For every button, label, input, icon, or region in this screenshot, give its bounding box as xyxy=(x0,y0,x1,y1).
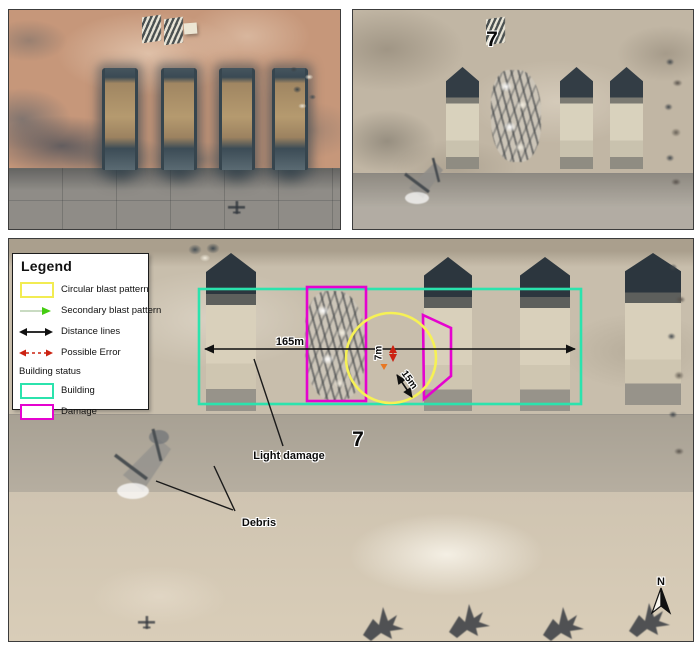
north-arrow-icon xyxy=(652,588,670,613)
distance-label-7m: 7m xyxy=(374,346,385,360)
circular-blast-swatch xyxy=(20,282,54,298)
debris-leader-line xyxy=(156,481,233,510)
legend-item-label: Damage xyxy=(61,406,97,417)
destroyed-hangar-wreckage xyxy=(491,70,541,162)
debris-column xyxy=(658,50,688,200)
legend-item-label: Distance lines xyxy=(61,326,120,337)
legend-row-possible-error: Possible Error xyxy=(18,342,148,363)
legend-row-building: Building xyxy=(18,380,148,401)
tarmac-apron xyxy=(9,168,340,230)
hangar xyxy=(219,68,255,170)
legend-row-damage: Damage xyxy=(18,401,148,422)
legend-row-distance-lines: Distance lines xyxy=(18,321,148,342)
debris-label: Debris xyxy=(242,517,276,529)
striped-structure xyxy=(142,15,161,44)
building-status-heading: Building status xyxy=(19,363,148,380)
building-number-label: 7 xyxy=(352,428,364,452)
legend-item-label: Secondary blast pattern xyxy=(61,305,161,316)
aircraft-wreck xyxy=(395,148,455,208)
damage-swatch xyxy=(20,404,54,420)
legend-item-label: Possible Error xyxy=(61,347,121,358)
light-damage-label: Light damage xyxy=(253,450,325,462)
legend-row-circular-blast: Circular blast pattern xyxy=(18,279,148,300)
hangar xyxy=(161,68,197,170)
legend-title: Legend xyxy=(21,258,148,274)
vehicle-clutter xyxy=(287,62,321,112)
legend: Legend Circular blast pattern Secondary … xyxy=(12,253,149,410)
hangar xyxy=(610,67,643,169)
legend-row-secondary-blast: Secondary blast pattern xyxy=(18,300,148,321)
secondary-blast-arrow-icon xyxy=(18,306,54,316)
building-outline-rect xyxy=(199,289,581,404)
small-building xyxy=(184,23,198,35)
striped-structure xyxy=(164,17,183,46)
pre-strike-satellite-panel xyxy=(8,9,341,230)
damage-outline-rect xyxy=(307,287,366,401)
distance-lines-icon xyxy=(18,327,54,337)
legend-item-label: Building xyxy=(61,385,95,396)
possible-error-icon xyxy=(18,348,54,358)
analysis-satellite-panel: 165m 7m 15m Light damage 7 Debris N Lege… xyxy=(8,238,694,642)
damage-assessment-figure: 7 xyxy=(0,0,700,660)
light-damage-leader-line xyxy=(254,359,283,446)
aircraft-silhouette xyxy=(227,200,247,216)
hangar xyxy=(560,67,593,169)
hangar xyxy=(102,68,138,170)
north-label: N xyxy=(657,576,665,588)
building-swatch xyxy=(20,383,54,399)
distance-label-165m: 165m xyxy=(276,336,304,348)
building-number-label: 7 xyxy=(486,28,498,52)
error-marker xyxy=(381,364,388,370)
legend-item-label: Circular blast pattern xyxy=(61,284,149,295)
post-strike-satellite-panel: 7 xyxy=(352,9,694,230)
